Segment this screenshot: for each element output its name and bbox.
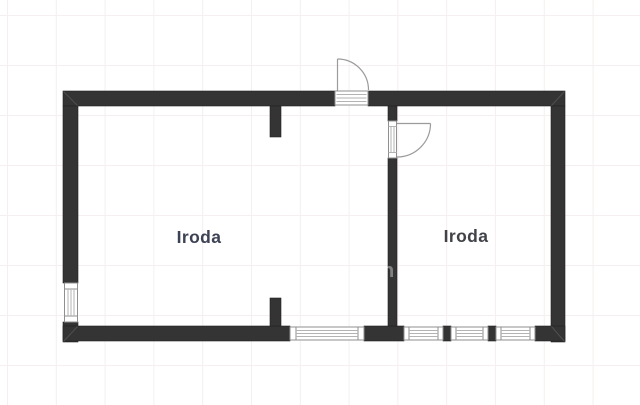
doors xyxy=(335,59,431,158)
floorplan-drawing: Iroda Iroda n xyxy=(0,0,640,405)
wall-bottom-right-corner xyxy=(535,326,565,341)
wall-corner-miters xyxy=(64,92,565,342)
wall-interior-above-door xyxy=(388,106,397,121)
wall-bottom-junction-block xyxy=(364,326,404,341)
wall-stub-bottom xyxy=(270,298,281,326)
wall-bottom-window-mullion-1 xyxy=(443,326,451,341)
wall-bottom-left-segment xyxy=(63,326,290,341)
walls xyxy=(63,91,565,342)
bottom-window-right-1-icon xyxy=(404,327,443,340)
bottom-window-right-2-icon xyxy=(451,327,488,340)
wall-bottom-window-mullion-2 xyxy=(488,326,496,341)
wall-left-upper-segment xyxy=(63,106,78,283)
wall-top-left-segment xyxy=(63,91,335,106)
wall-top-right-segment xyxy=(368,91,565,106)
room-label-left: Iroda xyxy=(177,227,222,247)
entry-door-icon xyxy=(335,59,369,105)
floorplan-canvas: Iroda Iroda n xyxy=(0,0,640,405)
bottom-window-left-room-icon xyxy=(290,327,364,340)
room-labels: Iroda Iroda xyxy=(177,226,489,247)
room-label-right: Iroda xyxy=(444,226,489,246)
bottom-window-right-3-icon xyxy=(496,327,535,340)
watermark-glyph: n xyxy=(382,260,394,282)
wall-interior-below-door xyxy=(388,158,397,326)
door-swing-arc xyxy=(397,124,431,158)
door-swing-arc xyxy=(338,59,369,90)
wall-right xyxy=(551,106,565,342)
wall-stub-top xyxy=(270,106,281,137)
left-wall-window-icon xyxy=(65,283,78,322)
interior-door-icon xyxy=(389,121,431,158)
